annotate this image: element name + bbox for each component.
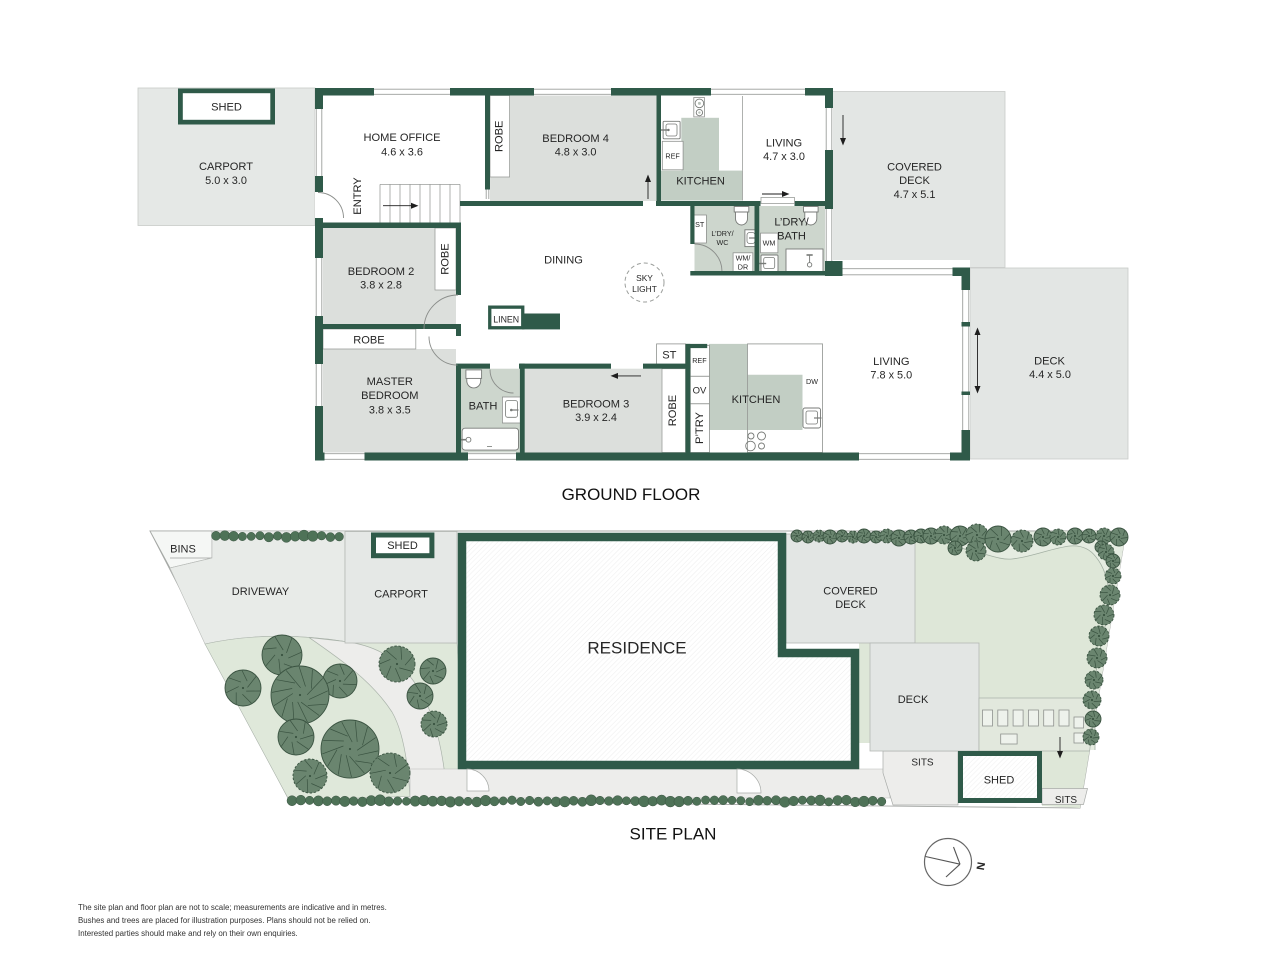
svg-text:ST: ST [695,220,705,229]
svg-text:SITE PLAN: SITE PLAN [630,825,717,844]
svg-text:CARPORT: CARPORT [374,589,428,601]
svg-text:DECK: DECK [899,175,930,187]
svg-text:KITCHEN: KITCHEN [732,394,781,406]
svg-text:DRIVEWAY: DRIVEWAY [232,586,290,598]
svg-text:DECK: DECK [1034,356,1065,368]
svg-text:Bushes and trees are placed fo: Bushes and trees are placed for illustra… [78,916,371,925]
svg-text:4.4 x 5.0: 4.4 x 5.0 [1029,369,1071,381]
svg-text:3.8 x 2.8: 3.8 x 2.8 [360,279,402,291]
svg-text:SHED: SHED [984,775,1015,787]
svg-text:SITS: SITS [1055,795,1078,806]
svg-text:BEDROOM 2: BEDROOM 2 [348,266,415,278]
svg-text:WC: WC [717,238,729,247]
svg-text:BEDROOM 4: BEDROOM 4 [542,133,609,145]
svg-text:BATH: BATH [777,231,806,243]
svg-text:SITS: SITS [911,758,934,769]
svg-text:GROUND FLOOR: GROUND FLOOR [562,485,701,504]
svg-text:WM: WM [763,239,776,248]
svg-text:LIGHT: LIGHT [632,284,657,294]
svg-text:HOME OFFICE: HOME OFFICE [363,132,440,144]
svg-text:4.7 x 5.1: 4.7 x 5.1 [894,189,936,201]
svg-text:5.0 x 3.0: 5.0 x 3.0 [205,175,247,187]
svg-text:DECK: DECK [835,599,866,611]
svg-text:DW: DW [806,377,818,386]
svg-text:The site plan and floor plan a: The site plan and floor plan are not to … [78,903,387,912]
svg-text:MASTER: MASTER [367,376,413,388]
svg-text:ROBE: ROBE [667,395,679,426]
svg-text:LIVING: LIVING [873,356,909,368]
svg-text:4.8 x 3.0: 4.8 x 3.0 [555,147,597,159]
svg-text:BINS: BINS [170,544,196,556]
svg-text:DECK: DECK [898,694,929,706]
svg-text:REF: REF [692,356,707,365]
svg-text:ST: ST [662,350,676,362]
svg-text:COVERED: COVERED [823,586,877,598]
svg-text:LIVING: LIVING [766,137,802,149]
svg-text:ROBE: ROBE [440,243,452,274]
svg-text:LINEN: LINEN [493,315,519,325]
svg-text:KITCHEN: KITCHEN [676,176,725,188]
svg-text:RESIDENCE: RESIDENCE [587,639,686,658]
svg-text:7.8 x 5.0: 7.8 x 5.0 [870,370,912,382]
svg-text:SKY: SKY [636,273,653,283]
svg-text:DR: DR [738,263,748,272]
svg-text:P’TRY: P’TRY [694,411,706,443]
svg-text:4.6 x 3.6: 4.6 x 3.6 [381,147,423,159]
svg-text:SHED: SHED [211,102,242,114]
svg-text:OV: OV [693,386,707,397]
svg-text:L’DRY/: L’DRY/ [711,229,733,238]
svg-text:ROBE: ROBE [353,335,384,347]
svg-text:3.8 x 3.5: 3.8 x 3.5 [369,405,411,417]
svg-text:BEDROOM: BEDROOM [361,390,418,402]
svg-text:BEDROOM 3: BEDROOM 3 [563,399,630,411]
svg-text:SHED: SHED [387,540,418,552]
svg-text:BATH: BATH [469,401,498,413]
svg-text:4.7 x 3.0: 4.7 x 3.0 [763,151,805,163]
svg-text:DINING: DINING [544,255,583,267]
svg-text:ROBE: ROBE [494,121,506,152]
svg-text:COVERED: COVERED [887,162,942,174]
svg-text:CARPORT: CARPORT [199,161,253,173]
svg-text:REF: REF [665,152,680,161]
svg-text:WM/: WM/ [736,254,751,263]
svg-text:3.9 x 2.4: 3.9 x 2.4 [575,412,617,424]
svg-text:Interested parties should make: Interested parties should make and rely … [78,929,298,938]
svg-text:L’DRY/: L’DRY/ [774,217,809,229]
svg-text:ENTRY: ENTRY [352,177,364,215]
